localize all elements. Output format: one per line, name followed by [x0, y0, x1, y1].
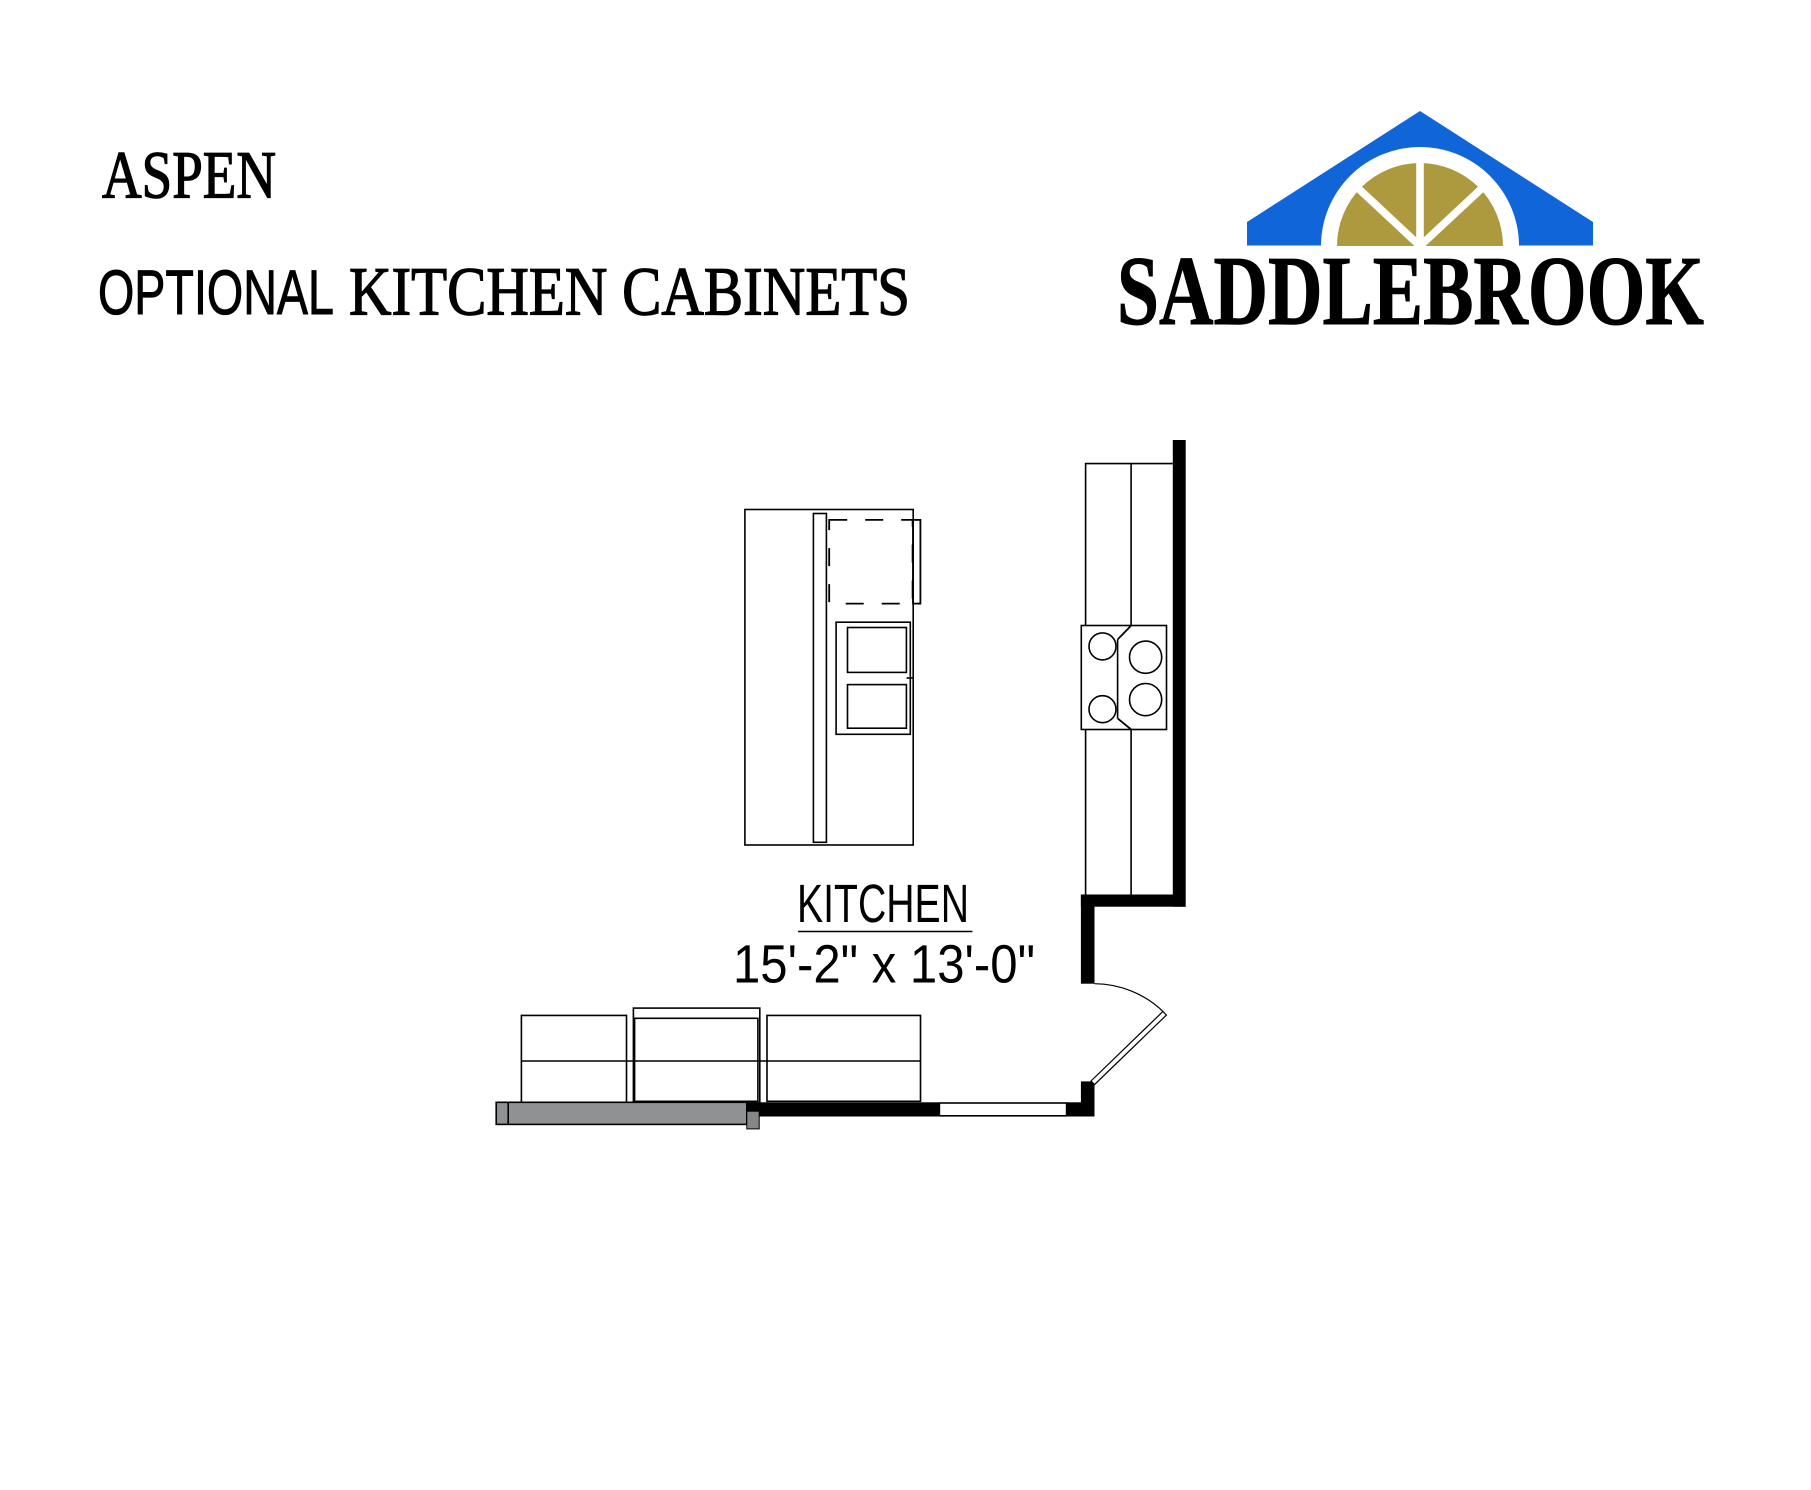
svg-text:ASPEN: ASPEN: [102, 138, 276, 213]
svg-text:KITCHEN: KITCHEN: [797, 874, 969, 934]
svg-text:KITCHEN CABINETS: KITCHEN CABINETS: [349, 254, 910, 330]
svg-text:OPTIONAL: OPTIONAL: [98, 258, 334, 328]
svg-text:SADDLEBROOK: SADDLEBROOK: [1117, 237, 1704, 346]
svg-text:15'-2" x 13'-0": 15'-2" x 13'-0": [733, 935, 1035, 995]
